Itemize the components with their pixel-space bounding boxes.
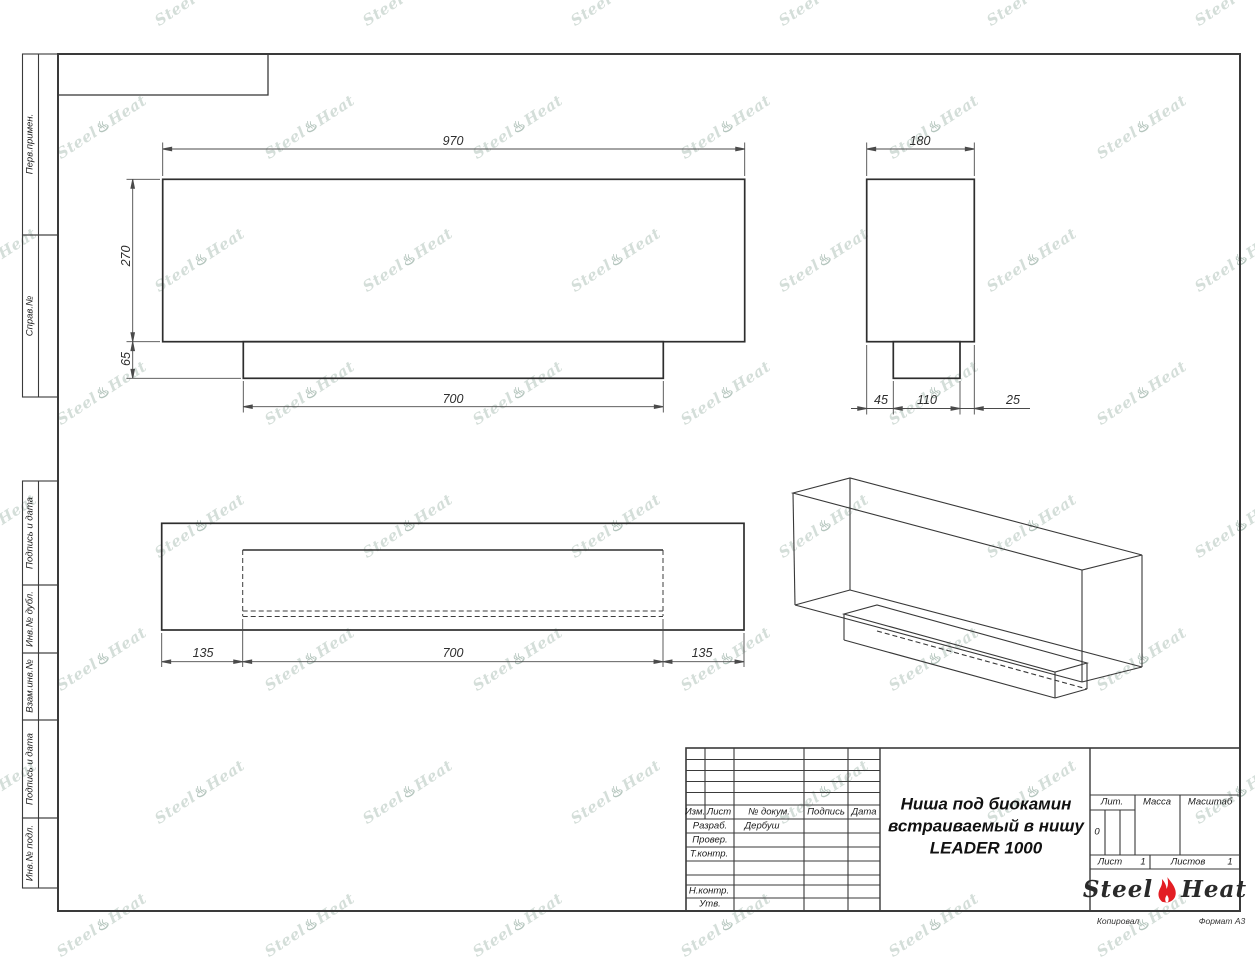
top-left-reference-block [58,54,268,95]
tb-lit-label: Лит. [1101,797,1123,807]
dim-side-front-offset: 45 [874,394,888,407]
tb-col-doc: № докум. [748,807,790,817]
dim-plan-right-offset: 135 [692,647,713,660]
tb-col-izm: Изм. [685,807,705,817]
dim-side-back-offset: 25 [1006,394,1020,407]
sidebar-label-perv-primen: Перв.примен. [25,114,35,175]
sheet-frame [58,54,1240,911]
drawing-title-line2: встраиваемый в нишу [888,818,1084,835]
front-view [163,179,745,378]
tb-row-developed: Разраб. [693,821,727,831]
tb-col-sign: Подпись [807,807,845,817]
tb-mass-label: Масса [1143,797,1171,807]
drawing-title-line1: Ниша под биокамин [901,796,1072,813]
flame-icon [1156,875,1178,903]
plan-view [162,523,744,630]
tb-col-list: Лист [707,807,731,817]
sidebar-label-sprav-no: Справ.№ [25,296,35,337]
tb-row-checked: Провер. [692,835,727,845]
tb-lit-value: 0 [1094,827,1099,837]
dim-plan-left-offset: 135 [193,647,214,660]
sidebar-label-vzam-inv: Взам.инв.№ [25,659,35,712]
dimension-lines [127,143,1031,668]
tb-sheets-label: Листов [1171,857,1206,867]
tb-row-ncontrol: Н.контр. [689,886,729,896]
tb-row-approved: Утв. [699,899,721,909]
side-view [867,179,975,378]
logo-steel-text: Steel [1083,876,1153,903]
drawing-sheet: Steel♨HeatSteel♨HeatSteel♨HeatSteel♨Heat… [0,0,1255,970]
dim-front-width: 970 [443,135,464,148]
logo-heat-text: Heat [1181,876,1247,903]
format-label: Формат А3 [1199,917,1246,926]
dim-base-width: 700 [443,393,464,406]
sidebar-label-inv-dubl: Инв.№ дубл. [25,591,35,647]
dim-side-niche-depth: 110 [917,394,937,407]
tb-sheets-value: 1 [1227,857,1232,867]
steelheat-logo: Steel Heat [1083,875,1247,903]
sidebar-label-podpis-data-1: Подпись и дата [25,497,35,569]
dim-plan-opening-width: 700 [443,647,464,660]
tb-scale-label: Масштаб [1188,797,1232,807]
iso-view [793,478,1142,698]
sidebar-label-podpis-data-2: Подпись и дата [25,733,35,805]
tb-sheet-label: Лист [1098,857,1122,867]
copied-label: Копировал [1097,917,1139,926]
dim-front-height: 270 [120,246,133,267]
dim-side-depth: 180 [910,135,931,148]
tb-developed-name: Дербуш [744,821,779,831]
drawing-title-line3: LEADER 1000 [930,840,1042,857]
tb-col-date: Дата [851,807,876,817]
tb-row-tcontrol: Т.контр. [690,849,728,859]
tb-sheet-value: 1 [1140,857,1145,867]
sidebar-label-inv-podl: Инв.№ подл. [25,825,35,881]
dim-base-height: 65 [120,352,133,366]
